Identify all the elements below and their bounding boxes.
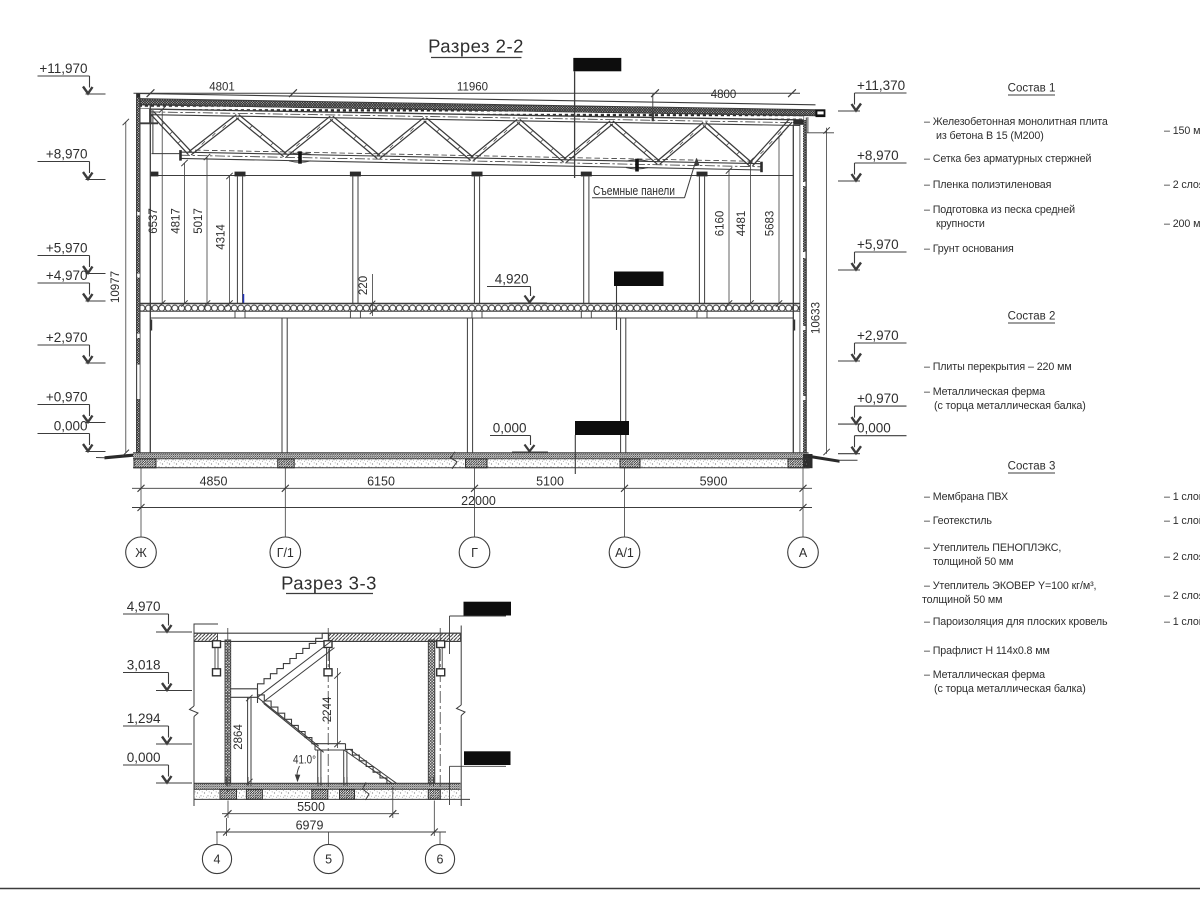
svg-text:5900: 5900: [700, 475, 728, 489]
svg-text:1,294: 1,294: [127, 711, 161, 726]
svg-text:3,018: 3,018: [127, 658, 161, 673]
svg-text:– Утеплитель ЭКОВЕР Y=100 кг/м: – Утеплитель ЭКОВЕР Y=100 кг/м³,: [924, 580, 1097, 592]
svg-text:+0,970: +0,970: [857, 391, 899, 406]
svg-text:Г: Г: [471, 546, 478, 560]
svg-text:10633: 10633: [810, 302, 822, 334]
svg-text:2244: 2244: [322, 696, 334, 722]
svg-text:0,000: 0,000: [493, 421, 527, 436]
svg-text:4850: 4850: [200, 475, 228, 489]
svg-text:+8,970: +8,970: [857, 148, 899, 163]
svg-text:41.0°: 41.0°: [293, 753, 316, 767]
svg-text:– Утеплитель ПЕНОПЛЭКС,: – Утеплитель ПЕНОПЛЭКС,: [924, 542, 1061, 554]
svg-text:5500: 5500: [297, 800, 325, 814]
svg-text:5: 5: [325, 853, 332, 867]
svg-text:4,920: 4,920: [495, 272, 529, 287]
svg-text:220: 220: [358, 276, 370, 295]
svg-text:+0,970: +0,970: [46, 390, 88, 405]
svg-text:– Сетка без арматурных стержне: – Сетка без арматурных стержней: [924, 153, 1092, 165]
svg-text:(с торца металлическая балка): (с торца металлическая балка): [934, 683, 1086, 695]
svg-text:+5,970: +5,970: [46, 241, 88, 256]
svg-text:6537: 6537: [148, 208, 160, 234]
svg-text:– 1 слой: – 1 слой: [1164, 491, 1200, 503]
svg-text:А/1: А/1: [615, 546, 634, 560]
svg-text:Состав 2: Состав 2: [1008, 311, 1056, 323]
svg-text:– Плиты перекрытия – 220 мм: – Плиты перекрытия – 220 мм: [924, 361, 1072, 373]
svg-text:– 2 слоя: – 2 слоя: [1164, 551, 1200, 563]
svg-text:– Пленка полиэтиленовая: – Пленка полиэтиленовая: [924, 179, 1052, 191]
svg-text:+2,970: +2,970: [46, 330, 88, 345]
svg-text:11960: 11960: [457, 82, 488, 94]
svg-text:5683: 5683: [764, 211, 776, 237]
svg-text:Съемные панели: Съемные панели: [593, 183, 675, 198]
svg-text:А: А: [799, 546, 808, 560]
svg-text:+2,970: +2,970: [857, 328, 899, 343]
svg-text:Ж: Ж: [135, 546, 147, 560]
svg-text:– Железобетонная монолитная п: – Железобетонная монолитная плита: [924, 116, 1108, 128]
svg-text:4481: 4481: [736, 211, 748, 237]
svg-text:– Металлическая ферма: – Металлическая ферма: [924, 669, 1045, 681]
svg-text:+5,970: +5,970: [857, 237, 899, 252]
svg-text:+11,370: +11,370: [857, 78, 905, 93]
svg-text:6: 6: [437, 853, 444, 867]
svg-text:Г/1: Г/1: [277, 546, 294, 560]
svg-text:22000: 22000: [461, 494, 496, 508]
svg-text:4,970: 4,970: [127, 599, 161, 614]
svg-text:– Мембрана ПВХ: – Мембрана ПВХ: [924, 491, 1008, 503]
svg-text:+11,970: +11,970: [39, 61, 87, 76]
svg-text:0,000: 0,000: [857, 421, 891, 436]
svg-text:– Прафлист Н 114х0.8 мм: – Прафлист Н 114х0.8 мм: [924, 645, 1050, 657]
svg-text:– Геотекстиль: – Геотекстиль: [924, 515, 992, 527]
svg-text:6160: 6160: [714, 211, 726, 237]
svg-text:0,000: 0,000: [54, 419, 88, 434]
svg-text:– Подготовка из песка средней: – Подготовка из песка средней: [924, 204, 1075, 216]
svg-text:– Грунт основания: – Грунт основания: [924, 243, 1014, 255]
svg-text:Разрез 3-3: Разрез 3-3: [281, 573, 377, 594]
svg-text:– 150 мм: – 150 мм: [1164, 125, 1200, 137]
svg-text:Состав 3: Состав 3: [1008, 461, 1056, 473]
svg-text:4: 4: [214, 853, 221, 867]
svg-text:из бетона В 15 (М200): из бетона В 15 (М200): [936, 130, 1044, 142]
svg-text:толщиной 50 мм: толщиной 50 мм: [933, 556, 1013, 568]
svg-text:10977: 10977: [110, 271, 122, 303]
svg-text:– 1 слой: – 1 слой: [1164, 616, 1200, 628]
svg-text:Разрез 2-2: Разрез 2-2: [428, 36, 524, 57]
svg-text:+8,970: +8,970: [46, 147, 88, 162]
svg-text:крупности: крупности: [936, 218, 985, 230]
svg-text:– 2 слоя: – 2 слоя: [1164, 179, 1200, 191]
svg-text:5017: 5017: [193, 208, 205, 234]
svg-text:4817: 4817: [170, 208, 182, 234]
svg-text:+4,970: +4,970: [46, 268, 88, 283]
svg-text:4314: 4314: [215, 224, 227, 250]
svg-text:6979: 6979: [296, 818, 324, 832]
svg-text:– Металлическая ферма: – Металлическая ферма: [924, 386, 1045, 398]
svg-text:– 1 слой: – 1 слой: [1164, 515, 1200, 527]
svg-text:– 200 мм: – 200 мм: [1164, 218, 1200, 230]
svg-text:(с торца металлическая балка): (с торца металлическая балка): [934, 400, 1086, 412]
svg-text:0,000: 0,000: [127, 750, 161, 765]
svg-text:– 2 слоя: – 2 слоя: [1164, 590, 1200, 602]
svg-text:5100: 5100: [536, 475, 564, 489]
svg-text:2864: 2864: [233, 724, 245, 750]
svg-text:6150: 6150: [367, 475, 395, 489]
svg-text:– Пароизоляция для плоских кро: – Пароизоляция для плоских кровель: [924, 616, 1108, 628]
svg-text:Состав 1: Состав 1: [1008, 83, 1056, 95]
svg-text:4801: 4801: [209, 82, 235, 94]
svg-text:толщиной 50 мм: толщиной 50 мм: [922, 594, 1002, 606]
svg-text:4800: 4800: [711, 89, 737, 101]
